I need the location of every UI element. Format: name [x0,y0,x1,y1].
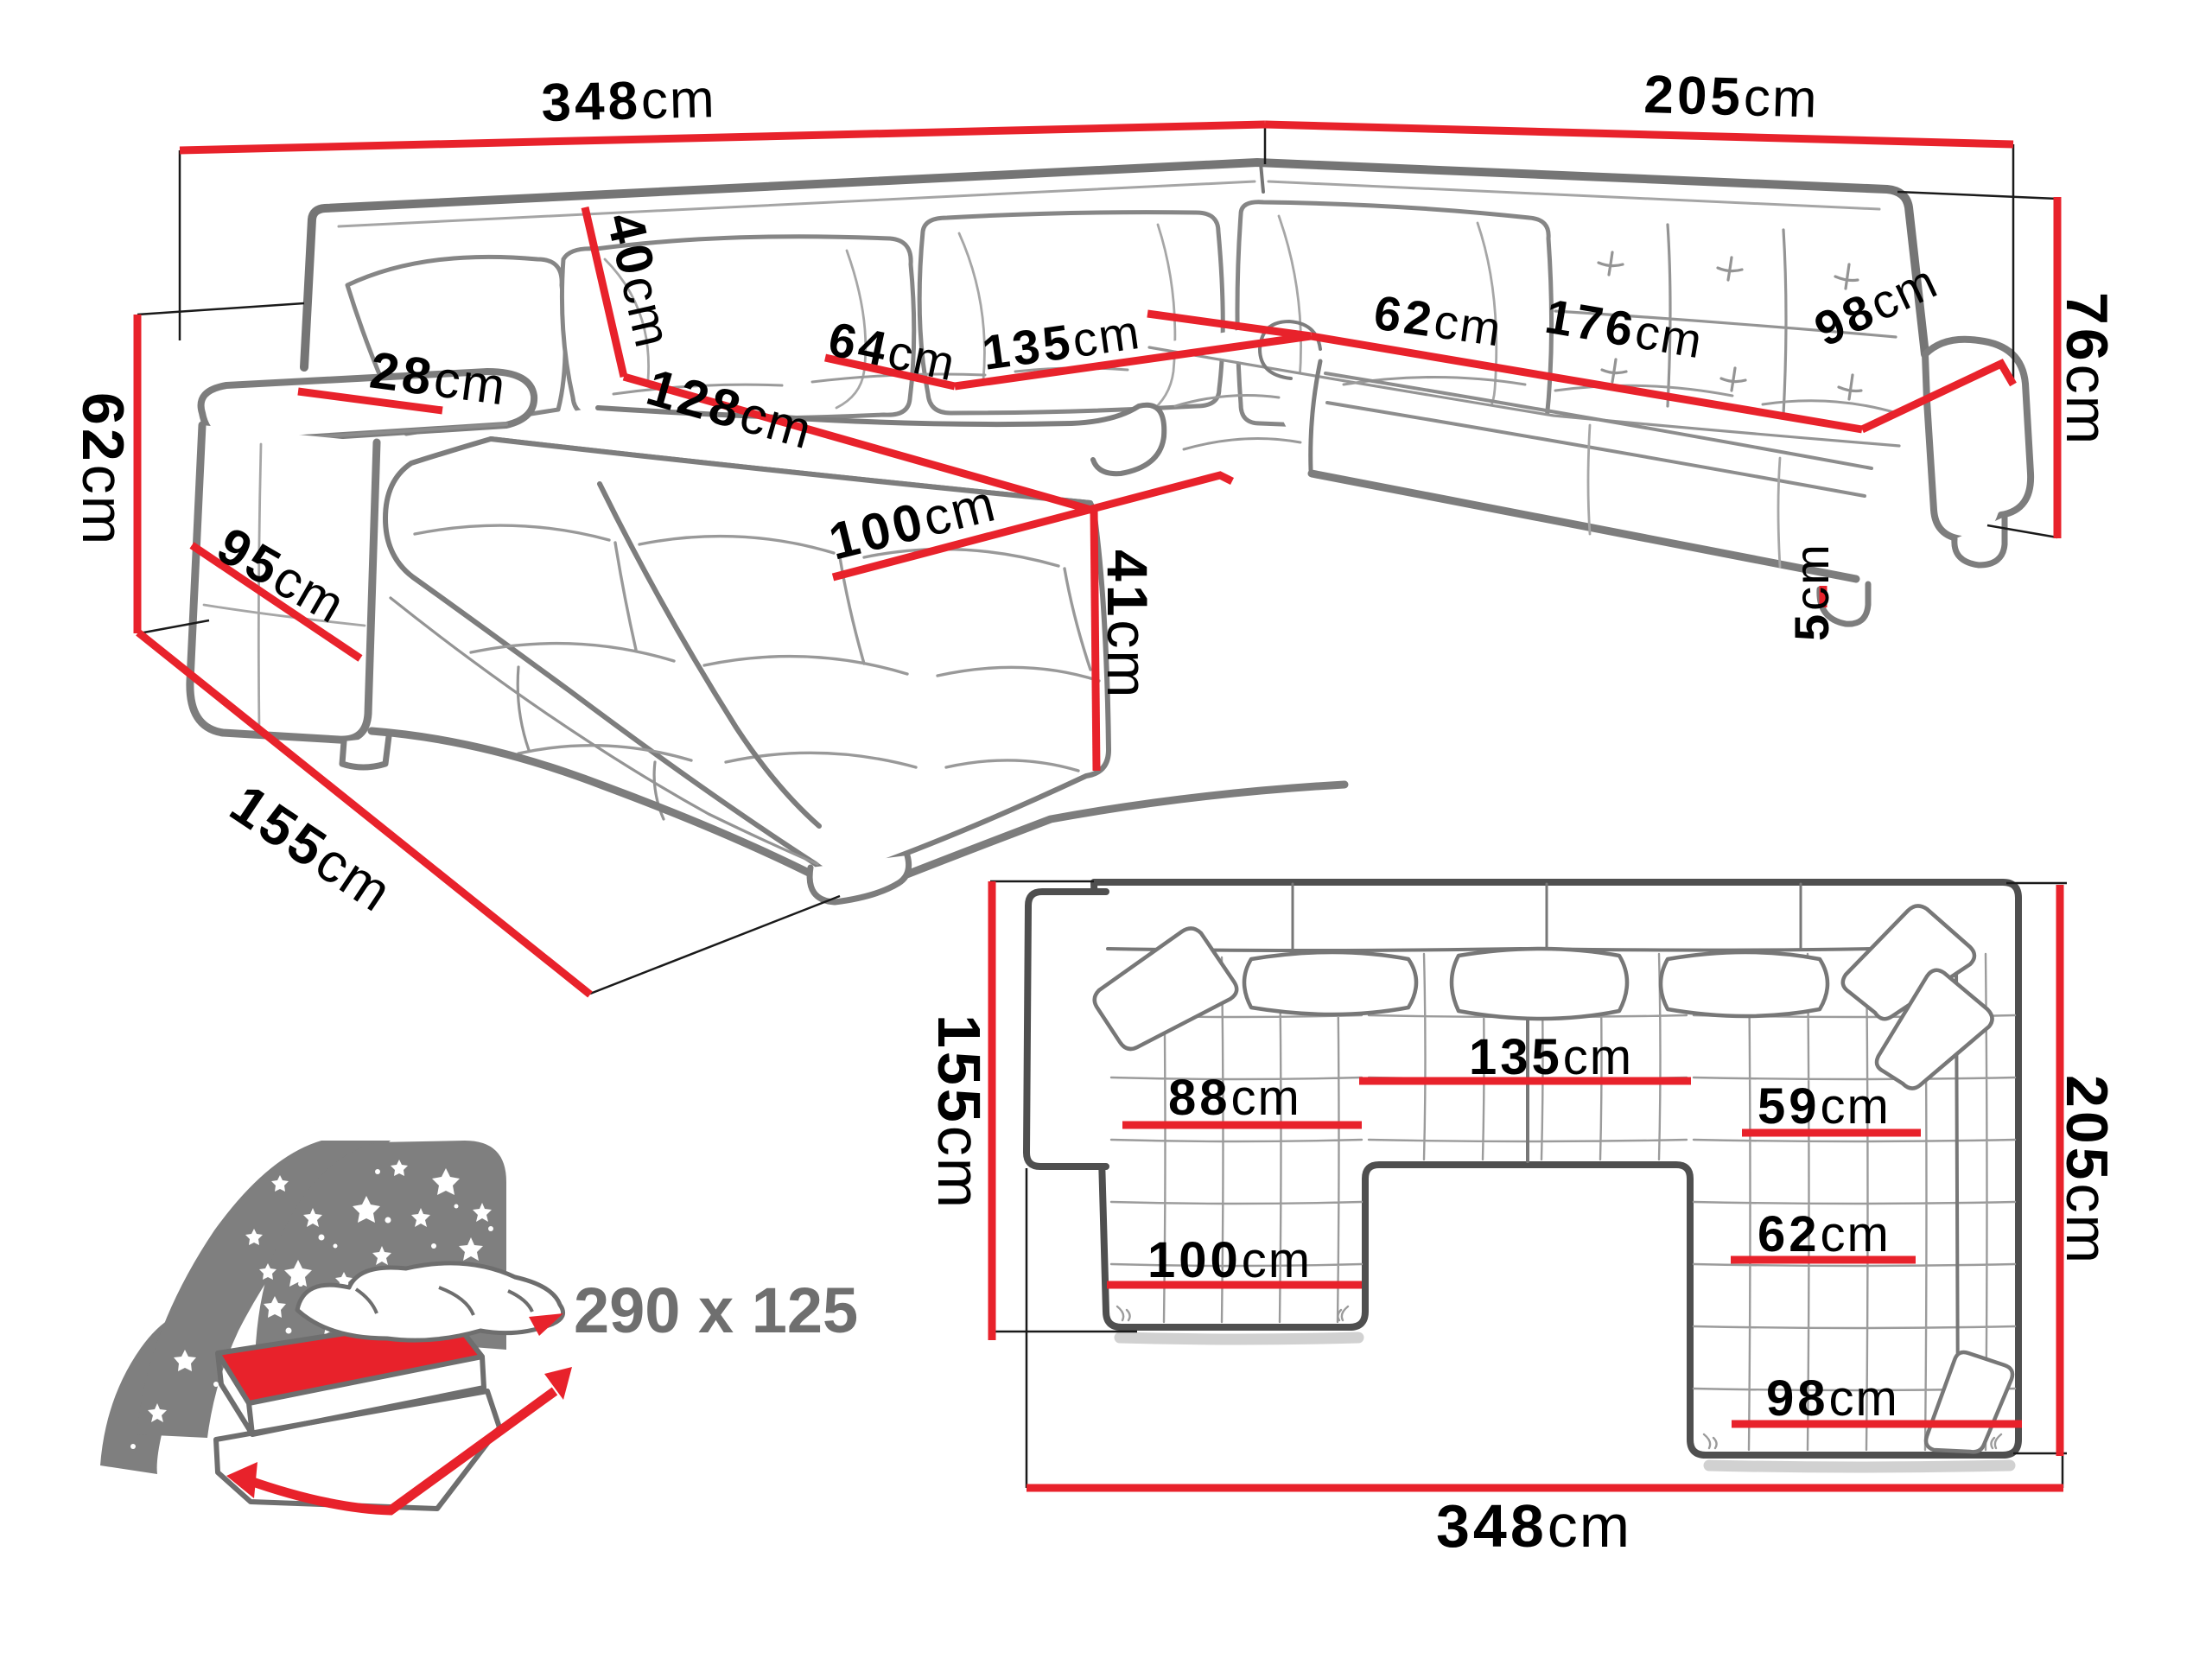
svg-text:155cm: 155cm [925,1014,993,1210]
svg-text:135cm: 135cm [1469,1029,1633,1085]
svg-text:62cm: 62cm [70,392,136,546]
svg-text:290 x 125: 290 x 125 [574,1274,858,1346]
svg-text:100cm: 100cm [1147,1232,1312,1288]
svg-text:205cm: 205cm [2054,1075,2120,1265]
svg-text:98cm: 98cm [1766,1370,1899,1427]
svg-text:88cm: 88cm [1168,1070,1301,1126]
svg-text:348cm: 348cm [1436,1492,1631,1560]
svg-text:59cm: 59cm [1758,1078,1891,1135]
svg-text:62cm: 62cm [1758,1206,1891,1262]
svg-text:76cm: 76cm [2054,292,2120,446]
svg-text:5cm: 5cm [1784,543,1839,641]
svg-text:41cm: 41cm [1096,550,1160,699]
svg-text:205cm: 205cm [1643,65,1820,130]
svg-text:348cm: 348cm [541,69,717,133]
